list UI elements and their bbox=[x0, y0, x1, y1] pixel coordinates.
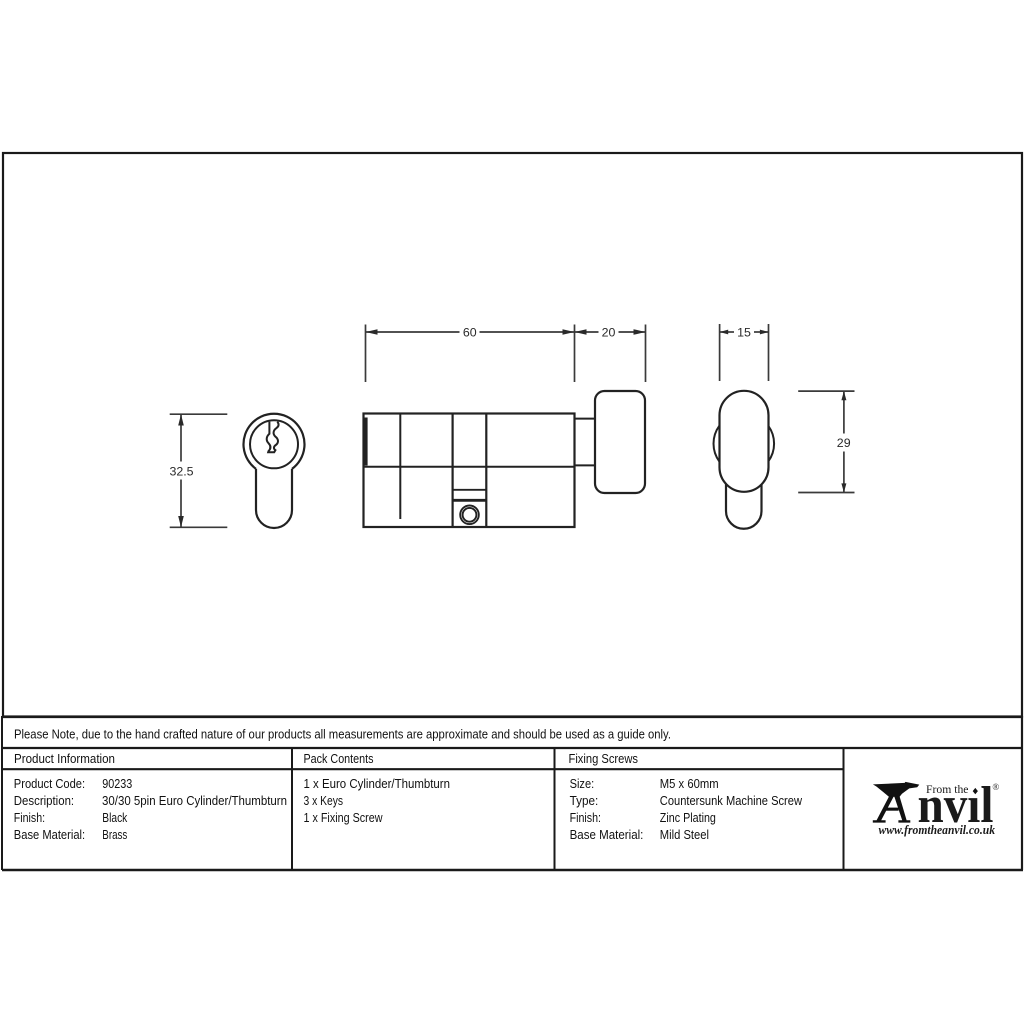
svg-text:Size:: Size: bbox=[570, 776, 595, 791]
svg-text:From the: From the bbox=[926, 784, 969, 796]
svg-text:Pack Contents: Pack Contents bbox=[304, 751, 374, 766]
svg-text:60: 60 bbox=[463, 325, 477, 339]
svg-text:20: 20 bbox=[602, 325, 616, 339]
svg-text:32.5: 32.5 bbox=[169, 465, 193, 479]
svg-text:30/30 5pin Euro Cylinder/Thumb: 30/30 5pin Euro Cylinder/Thumbturn bbox=[102, 793, 287, 808]
svg-text:3 x Keys: 3 x Keys bbox=[304, 793, 344, 808]
svg-text:Product Information: Product Information bbox=[14, 751, 115, 766]
svg-text:Product Code:: Product Code: bbox=[14, 776, 85, 791]
svg-text:29: 29 bbox=[837, 436, 851, 450]
svg-text:Mild Steel: Mild Steel bbox=[660, 827, 709, 842]
svg-text:Countersunk Machine Screw: Countersunk Machine Screw bbox=[660, 793, 803, 808]
svg-text:Black: Black bbox=[102, 810, 127, 825]
svg-text:Fixing Screws: Fixing Screws bbox=[569, 751, 639, 766]
svg-text:90233: 90233 bbox=[102, 776, 132, 791]
svg-text:1 x Fixing Screw: 1 x Fixing Screw bbox=[304, 810, 383, 825]
svg-text:®: ® bbox=[992, 782, 999, 792]
svg-text:Finish:: Finish: bbox=[14, 810, 45, 825]
svg-text:Type:: Type: bbox=[570, 793, 599, 808]
svg-text:Base Material:: Base Material: bbox=[570, 827, 644, 842]
svg-text:Please Note, due to the hand c: Please Note, due to the hand crafted nat… bbox=[14, 727, 671, 742]
svg-text:www.fromtheanvil.co.uk: www.fromtheanvil.co.uk bbox=[879, 822, 996, 837]
svg-text:15: 15 bbox=[737, 325, 751, 339]
svg-text:Base Material:: Base Material: bbox=[14, 827, 85, 842]
svg-text:M5 x 60mm: M5 x 60mm bbox=[660, 776, 719, 791]
svg-text:Finish:: Finish: bbox=[570, 810, 601, 825]
svg-text:Description:: Description: bbox=[14, 793, 74, 808]
svg-text:Zinc Plating: Zinc Plating bbox=[660, 810, 716, 825]
svg-text:Brass: Brass bbox=[102, 827, 127, 842]
svg-text:1 x Euro Cylinder/Thumbturn: 1 x Euro Cylinder/Thumbturn bbox=[304, 776, 451, 791]
